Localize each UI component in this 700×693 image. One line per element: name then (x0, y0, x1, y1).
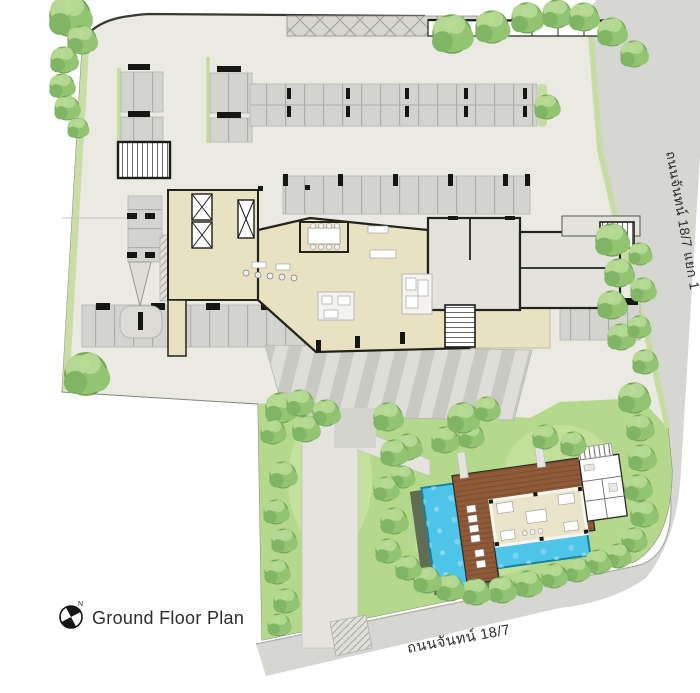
north-compass-icon: N (56, 601, 86, 632)
service-block (428, 218, 520, 310)
tree-icon (475, 11, 510, 43)
north-letter: N (78, 601, 83, 608)
tree-icon (511, 3, 544, 33)
page-title: Ground Floor Plan (92, 608, 244, 628)
parking-row-mid (283, 176, 530, 214)
tree-icon (542, 0, 573, 28)
tree-icon (49, 74, 75, 98)
ground-floor-plan: ถนนจันทน์ 18/7 แยก 1 ถนนจันทน์ 18/7 N Gr… (0, 0, 700, 693)
tree-icon (54, 96, 80, 120)
site-plan-svg: ถนนจันทน์ 18/7 แยก 1 ถนนจันทน์ 18/7 N Gr… (0, 0, 700, 693)
meeting-room (300, 222, 348, 252)
